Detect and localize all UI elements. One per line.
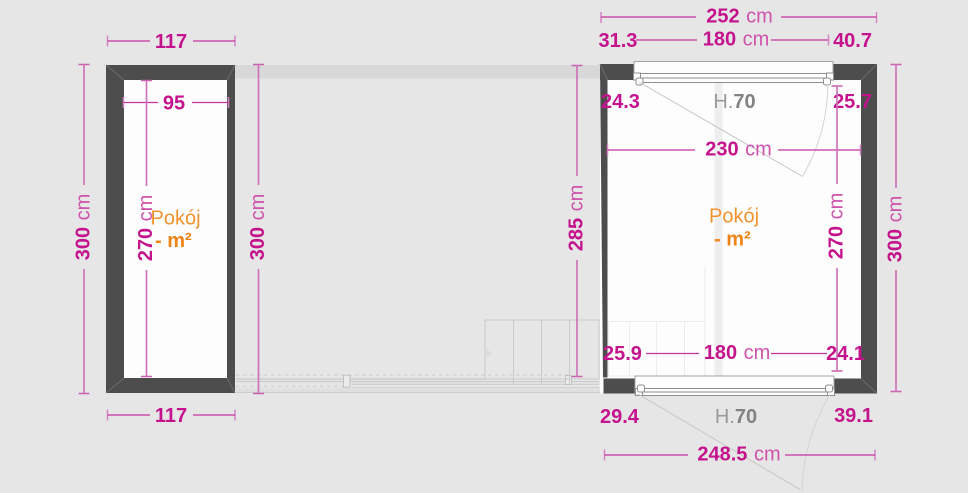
svg-text:Pokój: Pokój — [151, 208, 201, 230]
svg-text:31.3: 31.3 — [599, 30, 638, 52]
svg-text:285cm: 285cm — [566, 185, 588, 252]
svg-text:270cm: 270cm — [826, 193, 848, 260]
svg-text:300cm: 300cm — [885, 196, 907, 263]
svg-text:252cm: 252cm — [706, 6, 773, 28]
svg-text:248.5cm: 248.5cm — [697, 444, 780, 466]
svg-text:230cm: 230cm — [705, 139, 772, 161]
svg-text:300cm: 300cm — [247, 194, 269, 261]
svg-text:40.7: 40.7 — [833, 30, 872, 52]
svg-text:180cm: 180cm — [703, 29, 770, 51]
svg-text:39.1: 39.1 — [834, 405, 873, 427]
svg-text:25.9: 25.9 — [603, 343, 642, 365]
svg-text:H.70: H.70 — [715, 406, 757, 428]
svg-text:24.1: 24.1 — [826, 343, 865, 365]
svg-text:180cm: 180cm — [704, 342, 771, 364]
svg-text:117: 117 — [155, 405, 187, 427]
svg-text:H.70: H.70 — [713, 91, 755, 113]
svg-text:95: 95 — [163, 93, 185, 115]
svg-text:Pokój: Pokój — [709, 206, 759, 228]
svg-text:- m²: - m² — [714, 229, 751, 251]
svg-text:29.4: 29.4 — [600, 406, 640, 428]
svg-text:117: 117 — [155, 31, 187, 53]
svg-text:300cm: 300cm — [73, 194, 95, 261]
svg-text:- m²: - m² — [155, 230, 192, 252]
svg-text:25.7: 25.7 — [833, 91, 872, 113]
svg-text:24.3: 24.3 — [601, 91, 640, 113]
